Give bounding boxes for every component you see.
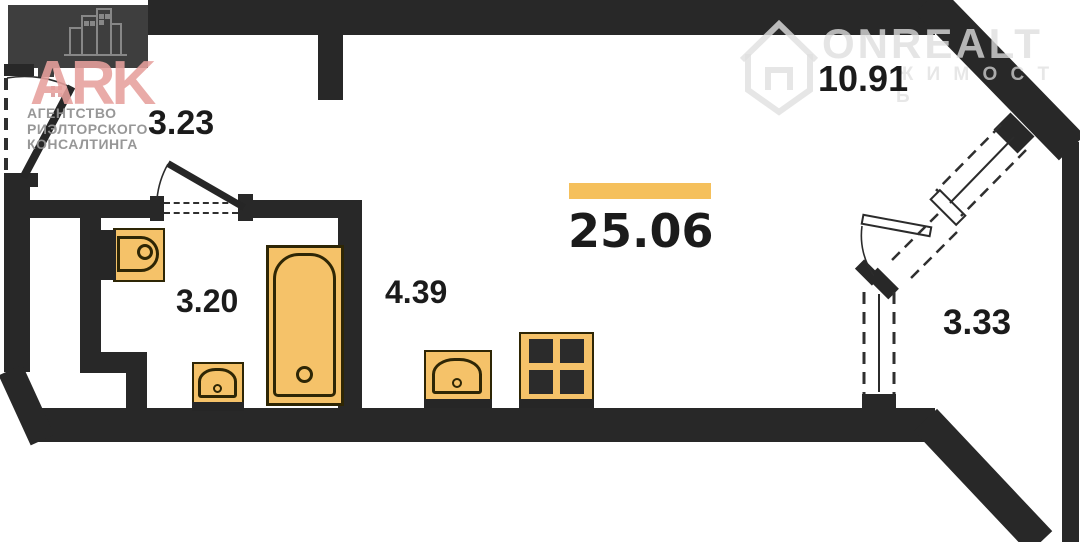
wall-left [4,185,30,372]
bathroom-sink-bowl [198,368,237,398]
wall-shaft-stub [126,373,147,408]
balcony-area-label: 3.33 [943,303,1011,343]
kitchen-sink-base [424,399,492,408]
floor-plan: ARK АГЕНТСТВО РИЭЛТОРСКОГО КОНСАЛТИНГА O… [0,0,1080,542]
living-room-area-label: 10.91 [818,58,908,100]
wall-diagonal-bottom-left [0,365,54,446]
bathroom-sink-icon [192,362,244,404]
kitchen-sink-icon [424,350,492,402]
wall-diagonal-bottom-right [914,409,1053,542]
kitchen-sink-drain [452,378,462,388]
balcony-window-cap-bottom [862,394,896,412]
balcony-glazing-dashed-a [936,125,1001,191]
ark-agency-line1: АГЕНТСТВО [27,106,148,122]
stove-icon [519,332,594,401]
balcony-glazing-dashed-b [961,150,1026,216]
bathroom-door-opening [164,202,238,214]
stove-burner [560,339,584,363]
house-icon [742,24,816,112]
wall-bathroom-north-left [30,200,152,218]
stove-base [519,399,594,408]
onrealt-logo-subtext: Ж И М О С Т Ь [896,64,1080,108]
total-area-label: 25.06 [568,204,714,258]
balcony-glazing-mullion [929,189,966,226]
hall-area-label: 3.23 [148,104,214,143]
stove-burner [529,370,553,394]
balcony-door-leaf [861,214,933,238]
wall-right [1062,142,1079,542]
stove-burner [529,339,553,363]
bathroom-door-arc [157,164,168,199]
ark-agency-text: АГЕНТСТВО РИЭЛТОРСКОГО КОНСАЛТИНГА [27,106,148,153]
toilet-tank [90,230,116,280]
ark-agency-line2: РИЭЛТОРСКОГО [27,122,148,138]
wall-top [148,0,935,35]
toilet-flush [137,244,153,260]
ark-agency-line3: КОНСАЛТИНГА [27,137,148,153]
bathtub-icon [266,245,344,406]
balcony-glazing-line [950,137,1014,203]
balcony-window-hinge-b [867,268,899,300]
bathroom-sink-drain [213,384,222,393]
wall-bottom [30,408,935,442]
toilet-icon [113,228,165,282]
door-jamb-left [150,196,164,221]
wall-shaft-horizontal [80,352,147,373]
wall-stub-hall [318,35,343,100]
kitchen-sink-bowl [432,358,482,394]
total-area-accent-bar [569,183,711,199]
bathtub-drain [296,366,313,383]
kitchen-area-label: 4.39 [385,274,447,311]
balcony-door-dashed-b [907,232,957,282]
bathroom-sink-base [192,402,244,411]
stove-burner [560,370,584,394]
bathroom-area-label: 3.20 [176,283,238,320]
